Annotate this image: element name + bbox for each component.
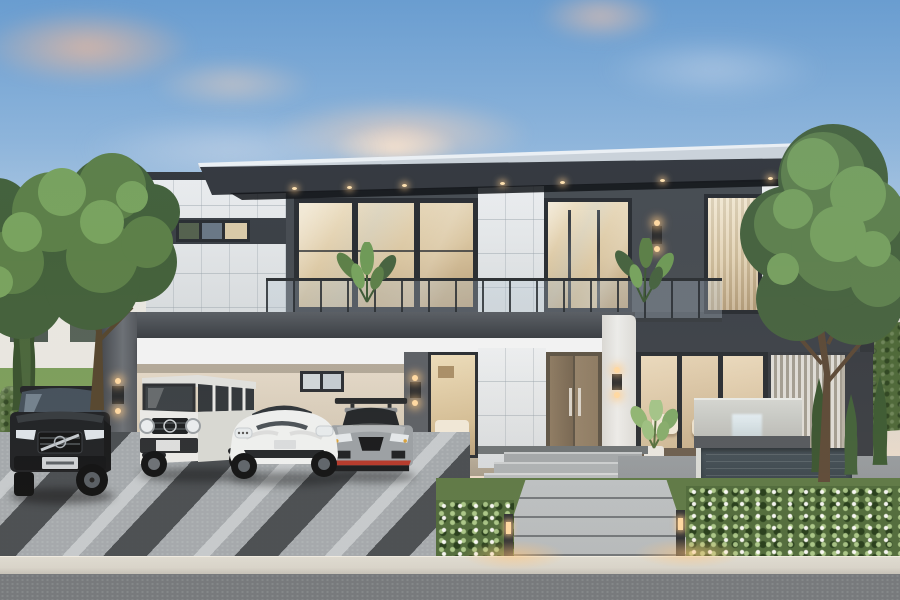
colour-grade-overlay	[0, 0, 900, 600]
house-exterior-rendering	[0, 0, 900, 600]
